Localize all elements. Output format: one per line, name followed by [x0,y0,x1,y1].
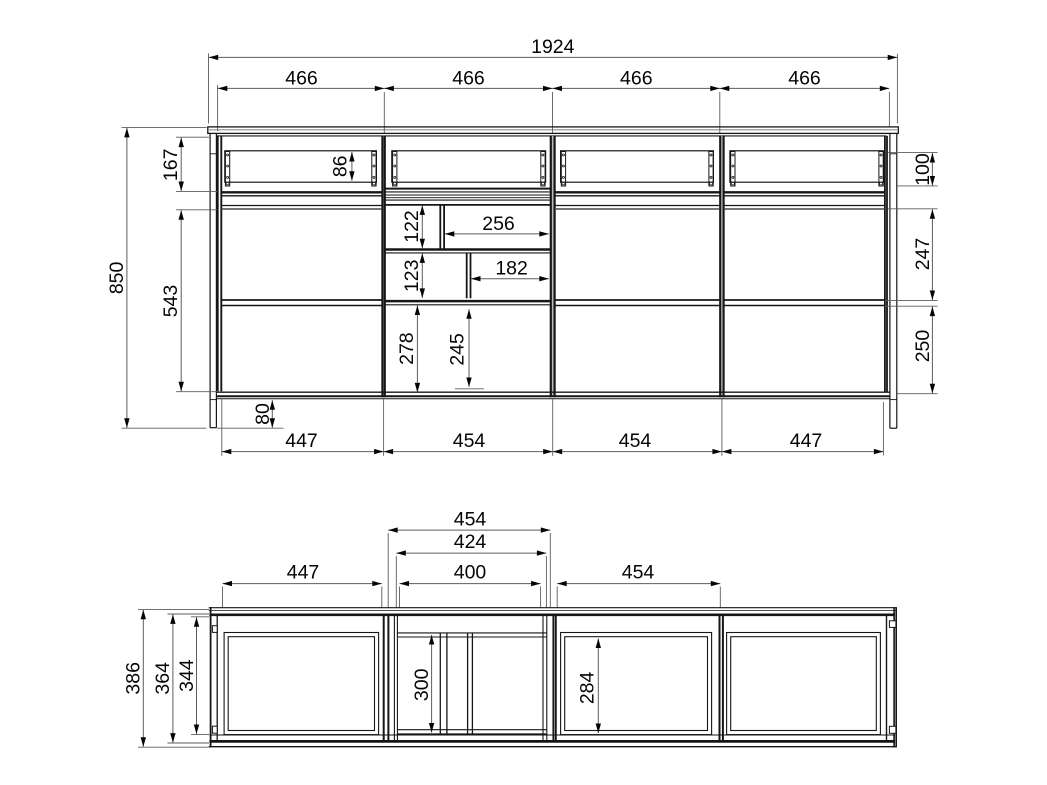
svg-text:182: 182 [495,258,528,280]
svg-text:543: 543 [160,285,182,318]
svg-text:447: 447 [790,430,823,452]
svg-text:247: 247 [912,238,934,271]
svg-text:122: 122 [401,210,423,243]
svg-text:284: 284 [577,671,599,704]
svg-text:447: 447 [285,430,318,452]
svg-text:256: 256 [482,213,515,235]
svg-text:300: 300 [411,668,433,701]
svg-text:454: 454 [622,561,655,583]
svg-text:466: 466 [285,67,318,89]
svg-text:123: 123 [401,260,423,293]
svg-text:400: 400 [454,561,487,583]
svg-text:80: 80 [252,403,274,425]
svg-text:167: 167 [160,149,182,182]
svg-text:386: 386 [123,662,145,695]
svg-text:245: 245 [446,333,468,366]
svg-text:1924: 1924 [531,36,575,58]
svg-text:466: 466 [788,67,821,89]
svg-text:850: 850 [106,261,128,294]
svg-text:100: 100 [912,153,934,186]
svg-text:278: 278 [396,332,418,365]
svg-text:364: 364 [152,662,174,695]
svg-text:454: 454 [453,430,486,452]
svg-text:454: 454 [619,430,652,452]
svg-text:86: 86 [330,155,352,177]
svg-text:424: 424 [454,531,487,553]
svg-text:447: 447 [287,561,320,583]
svg-text:344: 344 [176,659,198,692]
svg-text:466: 466 [620,67,653,89]
svg-text:454: 454 [454,508,487,530]
svg-text:250: 250 [912,330,934,363]
svg-text:466: 466 [452,67,485,89]
